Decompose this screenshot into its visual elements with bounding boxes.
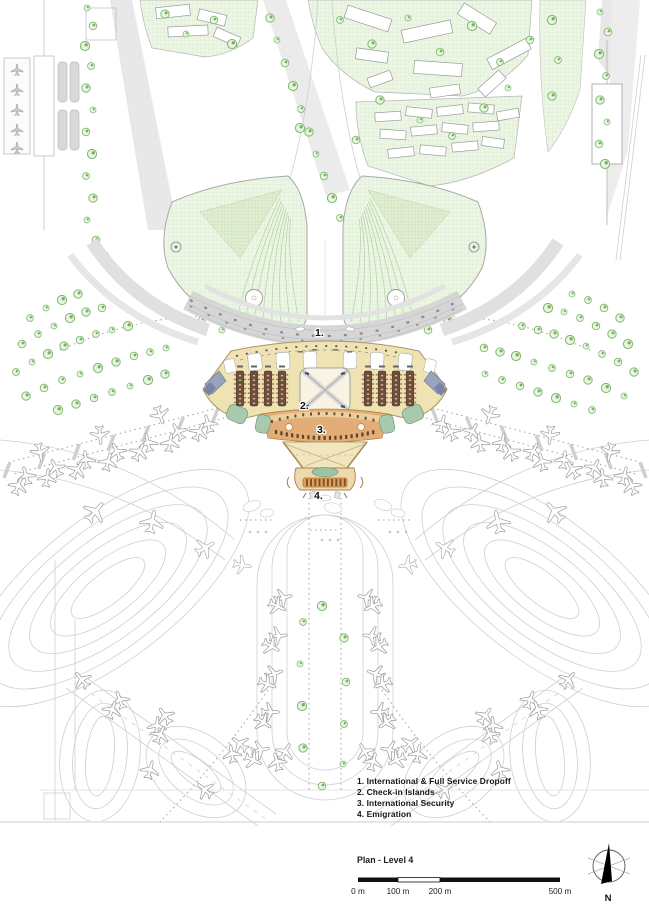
legend-item-emigration: 4. Emigration [357, 809, 511, 820]
tree-icon [27, 315, 34, 322]
tree-icon [59, 377, 66, 384]
tree-icon [571, 401, 577, 407]
building-footprint [380, 129, 407, 140]
tree-icon [497, 59, 504, 66]
tree-icon [123, 321, 132, 330]
tree-icon [297, 701, 306, 710]
apron-loop [36, 524, 180, 653]
tree-icon [516, 382, 524, 390]
tree-icon [35, 331, 42, 338]
apron-loop [147, 726, 246, 818]
drawing-title: Plan - Level 4 [357, 855, 413, 865]
tree-icon [577, 315, 584, 322]
tree-icon [596, 96, 604, 104]
tree-icon [565, 335, 574, 344]
tree-icon [589, 407, 596, 414]
airplane-icon [159, 432, 181, 453]
airplane-icon [69, 667, 95, 693]
tree-icon [623, 339, 632, 348]
tree-icon [53, 405, 62, 414]
airplane-icon [555, 667, 581, 693]
scale-tick-200: 200 m [429, 887, 452, 896]
tree-icon [130, 352, 138, 360]
tree-icon [405, 15, 411, 21]
apron-loop [82, 715, 118, 797]
tree-icon [90, 107, 96, 113]
tree-icon [592, 322, 600, 330]
tree-icon [266, 14, 274, 22]
tree-icon [526, 36, 534, 44]
airplane-icon [469, 432, 491, 453]
landside-development [4, 0, 645, 320]
tree-icon [342, 678, 350, 686]
tree-icon [608, 330, 616, 338]
tree-icon [417, 117, 423, 123]
tree-icon [77, 371, 83, 377]
label-dropoff: 1. [315, 327, 324, 339]
tree-icon [183, 31, 189, 37]
tree-icon [281, 59, 289, 67]
tree-icon [555, 57, 562, 64]
tree-icon [600, 159, 609, 168]
apron-loop [63, 548, 154, 629]
tree-icon [318, 782, 326, 790]
tree-icon [219, 327, 225, 333]
tree-icon [313, 151, 319, 157]
tree-icon [288, 81, 297, 90]
tree-icon [597, 9, 603, 15]
tree-icon [549, 365, 556, 372]
tree-icon [227, 39, 236, 48]
tree-icon [352, 136, 360, 144]
tree-icon [534, 326, 542, 334]
tree-icon [585, 297, 592, 304]
tree-icon [594, 49, 603, 58]
building-footprint [473, 121, 500, 132]
tree-icon [603, 73, 610, 80]
tree-icon [604, 119, 610, 125]
apron-loop [287, 515, 363, 770]
tree-icon [600, 304, 608, 312]
tree-icon [496, 348, 504, 356]
tree-icon [22, 392, 30, 400]
tree-icon [543, 303, 552, 312]
tree-icon [327, 193, 336, 202]
apron-loop [503, 686, 596, 826]
tree-icon [298, 106, 305, 113]
airplane-icon [139, 758, 162, 781]
tree-icon [40, 384, 48, 392]
scale-bar: 0 m 100 m 200 m 500 m [351, 878, 571, 897]
tree-icon [13, 369, 20, 376]
tree-icon [83, 173, 90, 180]
apron-loop [417, 476, 649, 701]
tree-icon [499, 377, 506, 384]
tree-icon [43, 305, 49, 311]
airplane-icon [478, 403, 502, 427]
tree-icon [547, 15, 556, 24]
scale-tick-100: 100 m [387, 887, 410, 896]
tree-icon [65, 313, 74, 322]
tree-icon [341, 721, 348, 728]
apron-loop [444, 500, 641, 677]
tree-icon [295, 123, 304, 132]
apron-loop [0, 451, 259, 724]
tree-icon [601, 383, 610, 392]
scale-tick-500: 500 m [549, 887, 572, 896]
tree-icon [480, 104, 488, 112]
tree-icon [436, 48, 444, 56]
legend-item-dropoff: 1. International & Full Service Dropoff [357, 776, 511, 787]
tree-icon [376, 96, 384, 104]
tree-icon [599, 351, 606, 358]
tree-icon [317, 601, 326, 610]
skylight [397, 353, 412, 372]
terminal-building [203, 341, 447, 499]
tree-icon [550, 330, 558, 338]
building-footprint [411, 125, 438, 136]
airplane-icon [232, 554, 253, 576]
tree-icon [210, 16, 218, 24]
north-arrow: N [588, 843, 630, 904]
tree-icon [551, 393, 560, 402]
tree-icon [299, 744, 307, 752]
tree-icon [566, 370, 574, 378]
tree-icon [29, 359, 35, 365]
airplane-icon [397, 554, 418, 576]
building-footprint [375, 111, 402, 122]
airplane-icon [90, 425, 111, 445]
tree-icon [143, 375, 152, 384]
label-emigration: 4. [314, 490, 323, 502]
tree-icon [109, 389, 116, 396]
tree-icon [161, 370, 169, 378]
apron-loop [497, 548, 588, 629]
tree-icon [89, 194, 97, 202]
tree-icon [60, 342, 68, 350]
site-plan-svg: 1. 2. 3. 4. 0 m 100 m 200 m 500 m N [0, 0, 649, 913]
tree-icon [561, 309, 567, 315]
tree-icon [480, 344, 488, 352]
skylight [247, 353, 262, 372]
tree-icon [569, 291, 575, 297]
apron-loop [10, 500, 207, 677]
skylight [303, 351, 317, 368]
tree-icon [87, 149, 96, 158]
tree-icon [595, 140, 603, 148]
tree-icon [519, 323, 526, 330]
tree-icon [320, 172, 328, 180]
apron-loop [532, 715, 568, 797]
tree-icon [112, 358, 120, 366]
tree-icon [57, 295, 66, 304]
apron-loop [0, 476, 233, 701]
tree-icon [93, 331, 100, 338]
apron-loop [470, 524, 614, 653]
tree-icon [89, 22, 97, 30]
tree-icon [84, 5, 90, 11]
tree-icon [18, 340, 26, 348]
airplane-icon [540, 425, 561, 445]
tree-icon [467, 21, 476, 30]
terminal-throat [283, 442, 367, 468]
tree-icon [163, 345, 169, 351]
tree-icon [337, 215, 344, 222]
tree-icon [84, 217, 90, 223]
tree-icon [531, 359, 537, 365]
tree-icon [305, 128, 313, 136]
tree-icon [274, 37, 280, 43]
tree-icon [88, 63, 95, 70]
tree-icon [548, 92, 556, 100]
tree-icon [72, 400, 80, 408]
tree-icon [584, 376, 592, 384]
tree-icon [337, 17, 344, 24]
tree-icon [82, 128, 90, 136]
tree-icon [614, 358, 622, 366]
tree-icon [76, 336, 84, 344]
tree-icon [340, 634, 348, 642]
apron-loop [53, 686, 146, 826]
tree-icon [90, 394, 98, 402]
tree-icon [161, 10, 169, 18]
tree-icon [511, 351, 520, 360]
tree-icon [82, 308, 90, 316]
tree-icon [368, 40, 376, 48]
tree-icon [51, 323, 57, 329]
tree-icon [482, 371, 488, 377]
apron-loop [391, 451, 649, 724]
tree-icon [98, 304, 106, 312]
tree-icon [74, 290, 82, 298]
tree-icon [630, 368, 638, 376]
plan-legend: 1. International & Full Service Dropoff … [357, 776, 511, 820]
tree-icon [449, 133, 456, 140]
tree-icon [616, 314, 624, 322]
airplane-icon [148, 403, 172, 427]
tree-icon [583, 343, 589, 349]
tree-icon [43, 349, 52, 358]
emigration-block [287, 468, 363, 499]
legend-item-checkin: 2. Check-in Islands [357, 787, 511, 798]
tree-icon [93, 363, 102, 372]
label-security: 3. [317, 424, 326, 436]
legend-item-security: 3. International Security [357, 798, 511, 809]
tree-icon [80, 41, 89, 50]
tree-icon [534, 388, 542, 396]
tree-icon [127, 383, 133, 389]
tree-icon [300, 619, 307, 626]
tree-icon [297, 661, 303, 667]
building-footprint [452, 141, 479, 152]
tree-icon [340, 761, 346, 767]
scale-tick-0: 0 m [351, 887, 365, 896]
tree-icon [82, 84, 90, 92]
plan-canvas: 1. 2. 3. 4. 0 m 100 m 200 m 500 m N 1. I… [0, 0, 649, 913]
skylight [343, 351, 357, 368]
north-label: N [605, 893, 612, 904]
tree-icon [109, 327, 115, 333]
label-checkin: 2. [300, 400, 309, 412]
tree-icon [604, 28, 612, 36]
tree-icon [147, 349, 154, 356]
tree-icon [505, 85, 511, 91]
tree-icon [621, 393, 627, 399]
building-footprint [420, 145, 447, 156]
